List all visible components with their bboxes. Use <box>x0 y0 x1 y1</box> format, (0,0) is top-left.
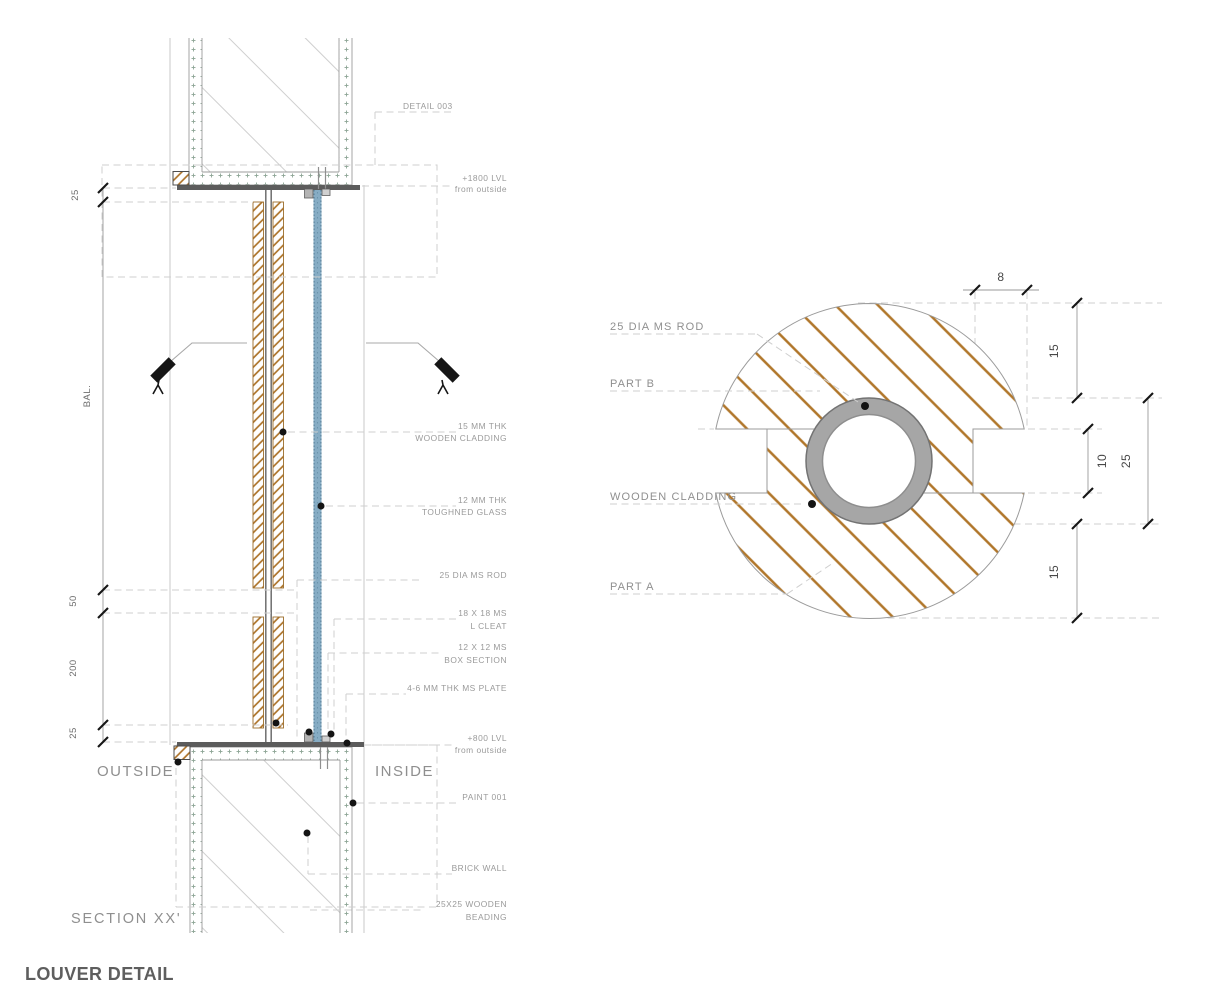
dim-25-bottom: 25 <box>68 727 79 739</box>
dim-50: 50 <box>68 595 79 607</box>
inside-label: INSIDE <box>375 763 434 780</box>
wooden-beading-bottom <box>174 746 190 760</box>
break-fork-glyph <box>438 380 448 394</box>
detail-label-part-a: PART A <box>610 581 655 593</box>
dim-15-bottom: 15 <box>1047 565 1061 579</box>
label-800-lvl-sub: from outside <box>455 745 507 755</box>
label-ms-plate: 4-6 MM THK MS PLATE <box>407 683 507 693</box>
bottom-wall-plaster-left <box>190 747 202 933</box>
label-cleat-2: L CLEAT <box>470 621 507 631</box>
bottom-wall-plaster-right <box>340 747 352 933</box>
louver-cross-section-detail: 25 DIA MS ROD PART B WOODEN CLADDING PAR… <box>610 270 1162 623</box>
detail-dimensions: 8 15 10 25 15 <box>963 270 1153 623</box>
louver-assembly <box>253 190 322 742</box>
break-symbol-right <box>366 343 460 394</box>
louver-detail-drawing: 25 BAL. 50 200 25 DETAIL 003 +1800 LVL f… <box>0 0 1211 1000</box>
wooden-cladding-strip <box>253 202 264 588</box>
wooden-beading-top <box>173 172 189 186</box>
toughened-glass-pane <box>314 190 322 742</box>
wooden-cladding-strip <box>253 617 264 728</box>
label-cladding-1: 15 MM THK <box>458 421 507 431</box>
dim-15-top: 15 <box>1047 344 1061 358</box>
dim-25: 25 <box>1119 454 1133 468</box>
wooden-cladding-strip <box>273 617 284 728</box>
top-wall-plaster-left <box>189 38 202 185</box>
break-fork-glyph <box>153 380 163 394</box>
top-wall-brick-core <box>202 38 339 172</box>
detail-label-cladding: WOODEN CLADDING <box>610 491 737 503</box>
section-drawing: 25 BAL. 50 200 25 DETAIL 003 +1800 LVL f… <box>68 38 507 933</box>
detail-label-part-b: PART B <box>610 378 655 390</box>
wooden-cladding-strip <box>273 202 284 588</box>
sheet-title: LOUVER DETAIL <box>25 964 174 984</box>
section-callout-labels: DETAIL 003 +1800 LVL from outside 15 MM … <box>403 101 507 922</box>
outside-label: OUTSIDE <box>97 763 174 780</box>
ms-plate-top <box>177 185 360 190</box>
section-name: SECTION XX' <box>71 911 181 927</box>
architectural-drawing-sheet: 25 BAL. 50 200 25 DETAIL 003 +1800 LVL f… <box>0 0 1211 1000</box>
ms-plate-bottom <box>177 742 364 747</box>
label-800-lvl: +800 LVL <box>468 733 507 743</box>
label-box-2: BOX SECTION <box>444 655 507 665</box>
label-beading-1: 25X25 WOODEN <box>436 899 507 909</box>
label-1800-lvl-sub: from outside <box>455 184 507 194</box>
top-brick-wall <box>189 38 352 185</box>
label-glass-1: 12 MM THK <box>458 495 507 505</box>
dim-10: 10 <box>1095 454 1109 468</box>
label-box-1: 12 X 12 MS <box>458 642 507 652</box>
label-glass-2: TOUGHNED GLASS <box>422 507 507 517</box>
top-wall-plaster-right <box>339 38 352 185</box>
ms-rod-ring <box>806 398 932 524</box>
dim-200: 200 <box>68 659 79 676</box>
bottom-wall-plaster-top <box>202 747 340 760</box>
label-brick-wall: BRICK WALL <box>452 863 507 873</box>
label-paint: PAINT 001 <box>462 792 507 802</box>
detail-label-rod: 25 DIA MS ROD <box>610 321 704 333</box>
label-cleat-1: 18 X 18 MS <box>458 608 507 618</box>
label-beading-2: BEADING <box>466 912 507 922</box>
dim-8: 8 <box>997 270 1004 284</box>
label-detail-003: DETAIL 003 <box>403 101 453 111</box>
bottom-brick-wall <box>190 747 352 933</box>
dimension-chain: 25 BAL. 50 200 25 <box>68 183 108 747</box>
label-1800-lvl: +1800 LVL <box>462 173 507 183</box>
label-ms-rod: 25 DIA MS ROD <box>440 570 507 580</box>
dim-bal: BAL. <box>82 385 93 408</box>
break-symbol-left <box>150 343 247 394</box>
label-cladding-2: WOODEN CLADDING <box>415 433 507 443</box>
dim-25-top: 25 <box>70 189 81 201</box>
